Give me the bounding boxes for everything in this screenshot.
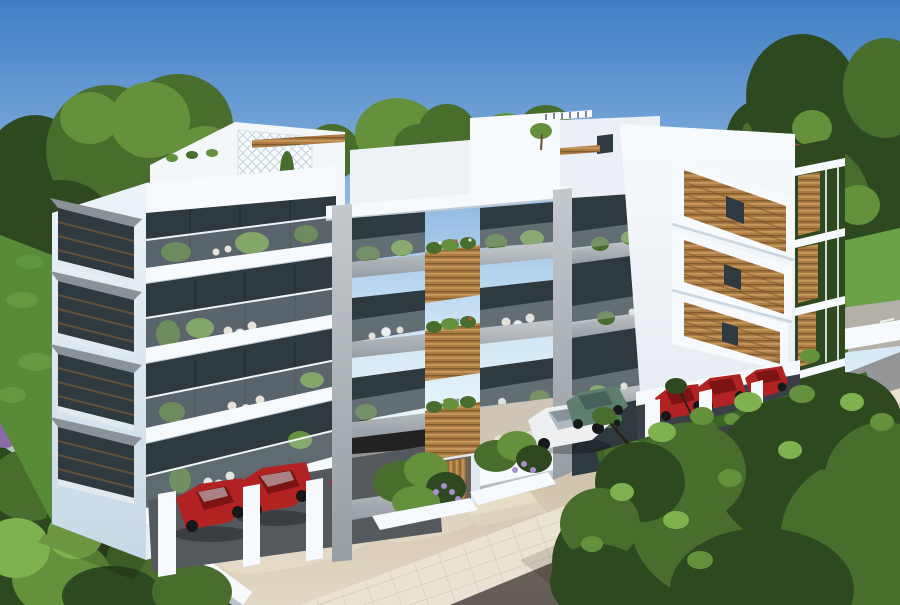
edge-timber-2 <box>798 244 818 303</box>
roof-plant-2 <box>186 151 198 159</box>
roof-plant-3 <box>206 149 218 157</box>
roof-plant-1 <box>166 154 178 162</box>
center-pier-left <box>332 204 352 562</box>
render-canvas: Aerial 3D rendering of a modern white ap… <box>0 0 900 605</box>
carport-pier-3 <box>306 478 323 561</box>
carport-pier-2 <box>243 484 260 567</box>
center-bay2 <box>480 202 553 408</box>
apartment-complex-rendering: Aerial 3D rendering of a modern white ap… <box>0 0 900 605</box>
carport-pier-1 <box>158 491 176 577</box>
background-right-strip <box>836 228 900 352</box>
roof-palm-trunk <box>541 134 542 150</box>
background-lawn-slope <box>838 228 900 308</box>
edge-timber-1 <box>798 172 820 236</box>
timber-feature-strip <box>425 237 480 461</box>
